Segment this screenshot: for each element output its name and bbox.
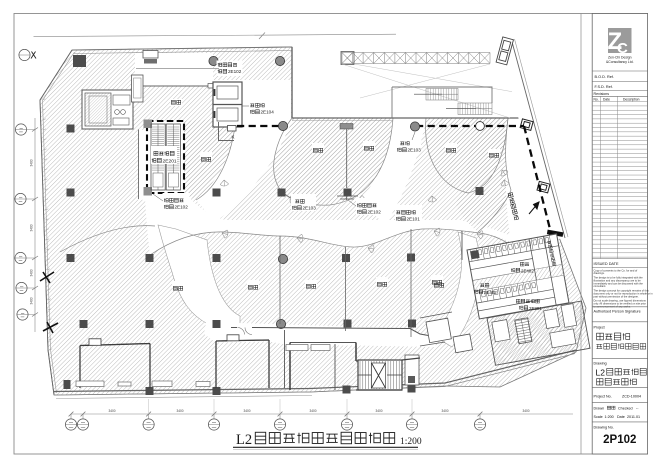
- svg-text:C: C: [617, 40, 628, 57]
- svg-text:Date: Date: [603, 98, 610, 102]
- svg-text:2E402: 2E402: [484, 290, 497, 295]
- svg-text:1:200: 1:200: [605, 415, 614, 419]
- svg-text:2E101: 2E101: [407, 217, 421, 222]
- svg-text:Project No.: Project No.: [594, 394, 612, 398]
- svg-text:Revisions: Revisions: [594, 92, 610, 96]
- svg-text:L2: L2: [596, 368, 606, 378]
- svg-text:ISSUED DATE: ISSUED DATE: [594, 262, 620, 266]
- svg-text:2E201: 2E201: [163, 158, 177, 164]
- svg-text:2E301: 2E301: [529, 306, 542, 311]
- svg-text:Drawing No.: Drawing No.: [594, 426, 614, 430]
- svg-text:3400: 3400: [108, 409, 115, 413]
- svg-text:Scale: Scale: [594, 415, 603, 419]
- svg-text:2E102: 2E102: [228, 69, 242, 74]
- svg-text:Description: Description: [623, 98, 640, 102]
- svg-text:drawings.: drawings.: [594, 271, 605, 275]
- svg-text:consultant.: consultant.: [594, 284, 607, 288]
- svg-text:Authorised Person Signature: Authorised Person Signature: [594, 309, 641, 313]
- svg-text:F.S.D. Ref.: F.S.D. Ref.: [595, 85, 613, 89]
- svg-text:3400: 3400: [243, 409, 250, 413]
- svg-text:ZCD-10004: ZCD-10004: [622, 394, 641, 398]
- svg-text:Drawn: Drawn: [594, 406, 605, 410]
- svg-text:2E102: 2E102: [368, 210, 382, 215]
- svg-text:3400: 3400: [441, 409, 448, 413]
- svg-text:No.: No.: [594, 98, 599, 102]
- svg-text:3400: 3400: [522, 409, 529, 413]
- svg-text:2P102: 2P102: [603, 434, 636, 446]
- svg-text:part without permission of the: part without permission of the designer.: [594, 294, 639, 298]
- svg-text:1:200: 1:200: [400, 437, 422, 447]
- svg-text:3400: 3400: [309, 409, 316, 413]
- svg-text:3400: 3400: [176, 409, 183, 413]
- svg-text:2E102: 2E102: [175, 205, 189, 210]
- svg-text:Project: Project: [594, 325, 605, 329]
- svg-text:3400: 3400: [375, 409, 382, 413]
- svg-text:3400: 3400: [30, 269, 34, 276]
- svg-text:Drawing: Drawing: [594, 361, 607, 365]
- svg-text:3400: 3400: [30, 159, 34, 166]
- svg-text:K: K: [232, 135, 235, 140]
- svg-text:2011.01: 2011.01: [627, 415, 640, 419]
- svg-text:to commencement of any works.: to commencement of any works.: [594, 304, 632, 308]
- svg-text:Date: Date: [617, 415, 625, 419]
- svg-text:3400: 3400: [30, 297, 34, 304]
- svg-text:L2: L2: [236, 432, 252, 448]
- svg-text:&Consultancy Ltd.: &Consultancy Ltd.: [606, 60, 634, 64]
- svg-text:2E104: 2E104: [261, 110, 275, 115]
- svg-text:B.O.D. Ref.: B.O.D. Ref.: [595, 75, 614, 79]
- svg-text:2E402: 2E402: [521, 269, 534, 274]
- svg-text:2E103: 2E103: [303, 206, 317, 211]
- svg-text:3400: 3400: [30, 224, 34, 231]
- svg-text:Checked: Checked: [618, 406, 633, 410]
- svg-text:2E103: 2E103: [408, 148, 422, 153]
